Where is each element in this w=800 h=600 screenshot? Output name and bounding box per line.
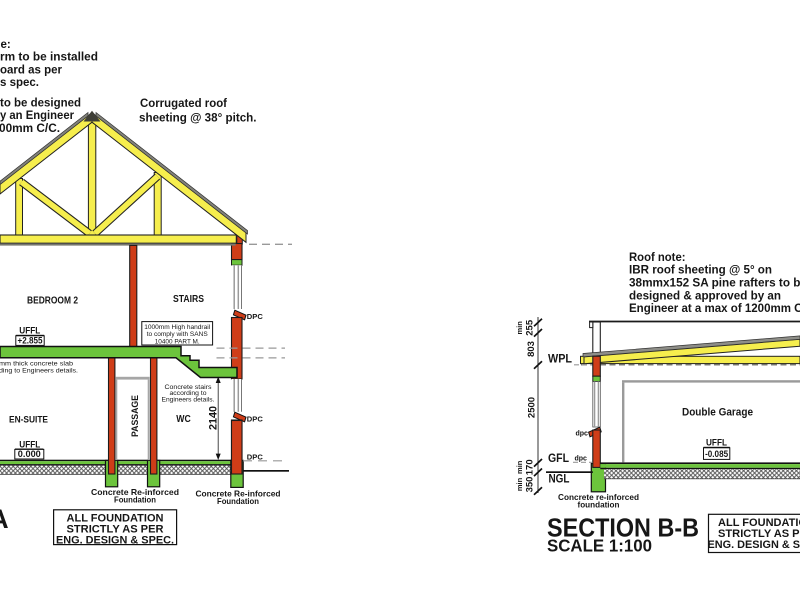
svg-text:170: 170 (525, 459, 536, 475)
svg-text:sheeting @ 38° pitch.: sheeting @ 38° pitch. (139, 113, 257, 125)
svg-text:y an Engineer: y an Engineer (0, 110, 75, 122)
svg-text:0.000: 0.000 (18, 449, 41, 459)
svg-text:PASSAGE: PASSAGE (130, 395, 141, 437)
svg-text:s spec.: s spec. (0, 77, 39, 89)
svg-text:DPC: DPC (247, 312, 264, 321)
svg-text:SCALE 1:100: SCALE 1:100 (547, 536, 652, 556)
svg-text:-0.085: -0.085 (705, 449, 728, 459)
svg-text:dpc: dpc (576, 431, 589, 438)
svg-text:to be designed: to be designed (0, 98, 81, 110)
svg-text:rm to be installed: rm to be installed (0, 52, 98, 64)
svg-text:Engineers details.: Engineers details. (162, 396, 215, 403)
svg-text:WPL: WPL (548, 352, 572, 366)
svg-text:1000mm High handrail: 1000mm High handrail (144, 324, 210, 331)
svg-text:2140: 2140 (208, 406, 220, 430)
svg-text:10400 PART M.: 10400 PART M. (155, 338, 200, 345)
svg-text:DPC: DPC (247, 414, 264, 423)
svg-text:NGL: NGL (549, 472, 570, 486)
svg-text:ENG. DESIGN & SPEC.: ENG. DESIGN & SPEC. (708, 539, 800, 551)
svg-text:foundation: foundation (578, 500, 620, 509)
svg-text:+2.855: +2.855 (18, 336, 43, 346)
svg-text:ENG. DESIGN & SPEC.: ENG. DESIGN & SPEC. (56, 534, 174, 546)
svg-text:e:: e: (1, 39, 11, 51)
svg-text:ding to Engineers details.: ding to Engineers details. (0, 368, 78, 375)
svg-text:00mm C/C.: 00mm C/C. (0, 123, 60, 135)
svg-text:350: 350 (525, 477, 536, 493)
svg-text:Foundation: Foundation (217, 497, 259, 506)
svg-text:Double Garage: Double Garage (682, 407, 753, 419)
svg-text:A: A (0, 504, 9, 534)
svg-text:STAIRS: STAIRS (173, 294, 204, 305)
svg-text:min: min (515, 321, 524, 335)
svg-text:GFL: GFL (548, 451, 569, 465)
svg-text:IBR roof sheeting @ 5° on: IBR roof sheeting @ 5° on (629, 263, 772, 277)
svg-text:BEDROOM 2: BEDROOM 2 (27, 295, 78, 306)
svg-text:Corrugated roof: Corrugated roof (140, 98, 227, 110)
svg-text:803: 803 (526, 341, 537, 357)
svg-text:dpc: dpc (575, 456, 588, 463)
svg-text:mm thick concrete slab: mm thick concrete slab (0, 361, 73, 368)
svg-text:WC: WC (176, 414, 191, 425)
svg-text:oard as per: oard as per (0, 64, 63, 76)
svg-text:Engineer at a max of 1200mm C/: Engineer at a max of 1200mm C/C (629, 301, 800, 315)
svg-text:to comply with SANS: to comply with SANS (147, 331, 208, 338)
svg-text:Foundation: Foundation (114, 496, 156, 505)
svg-text:EN-SUITE: EN-SUITE (9, 414, 49, 425)
svg-text:2500: 2500 (527, 397, 538, 418)
svg-text:255: 255 (525, 319, 536, 336)
svg-text:min: min (515, 477, 524, 491)
svg-text:min: min (515, 460, 524, 474)
